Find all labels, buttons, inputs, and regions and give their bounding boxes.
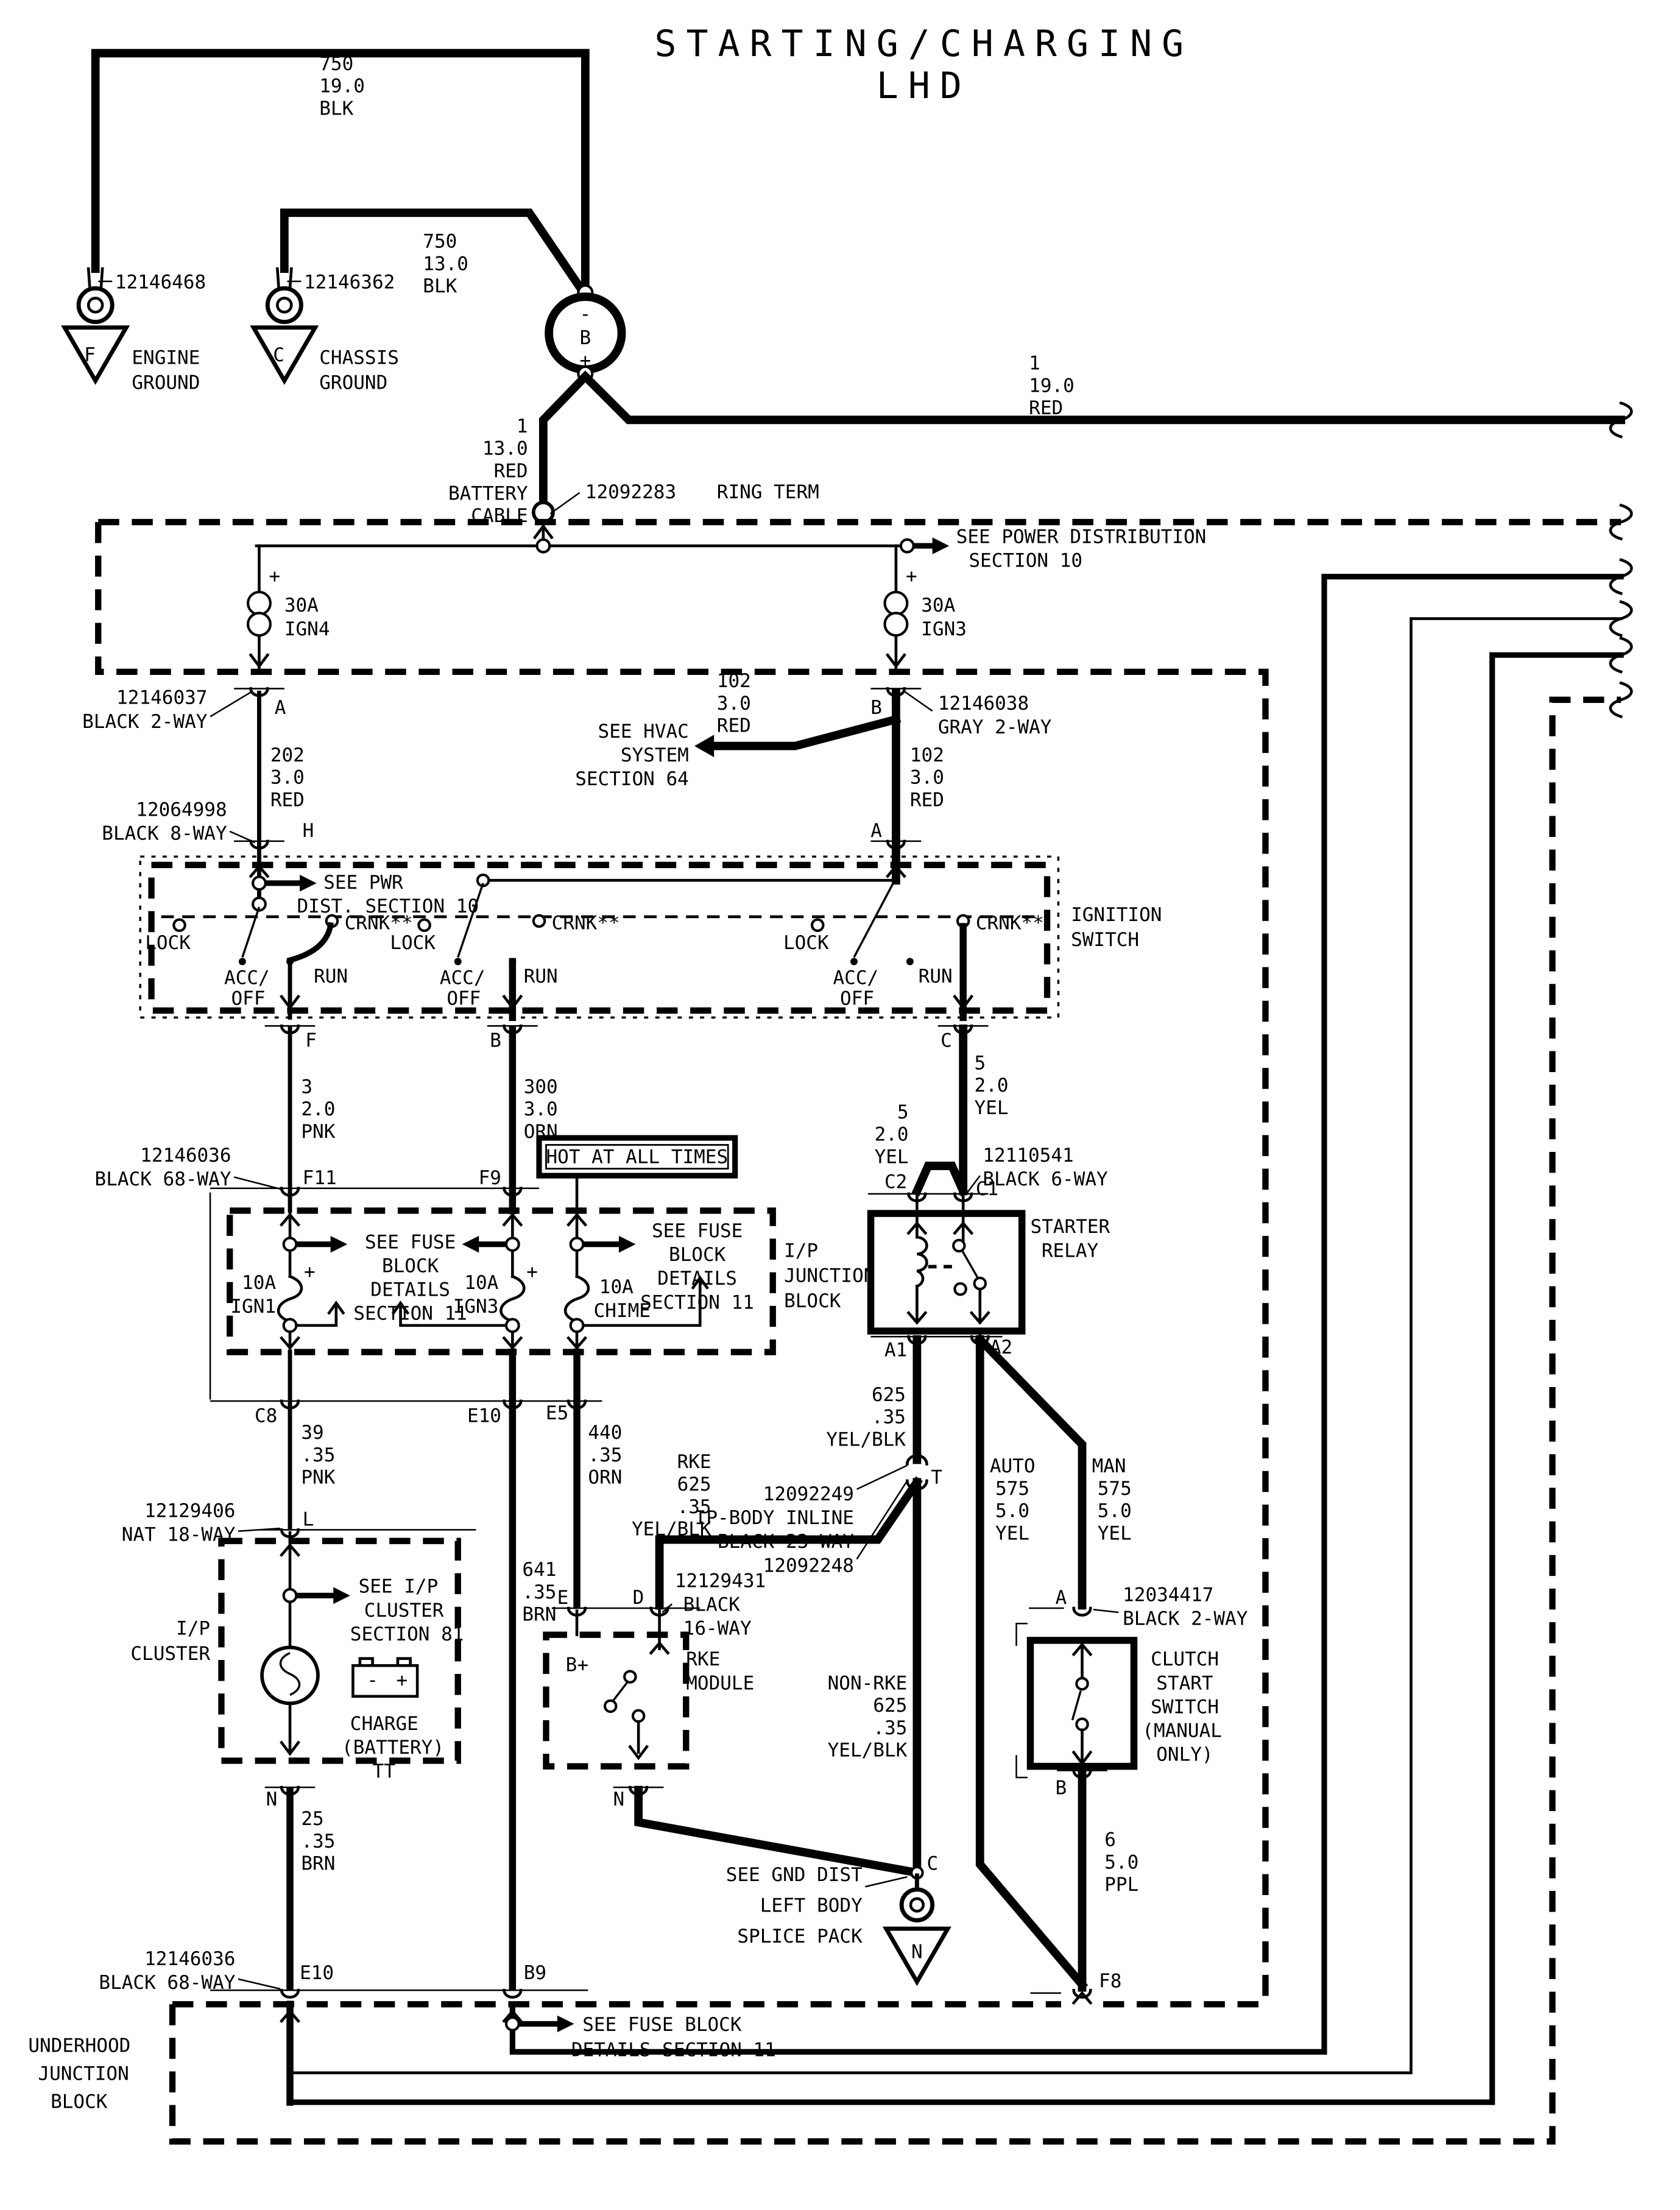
fuse-element-icon [885, 592, 908, 615]
pin-letter: B9 [524, 1962, 546, 1984]
pin-letter: E10 [300, 1962, 334, 1984]
power-distribution-box: SEE POWER DISTRIBUTION SECTION 10 + 30A … [98, 522, 1621, 2004]
component-label: JUNCTION [38, 2063, 129, 2085]
callout-text: SEE FUSE [365, 1232, 456, 1254]
arrowhead-icon [619, 1236, 636, 1253]
page-title: STARTING/CHARGING [655, 23, 1194, 65]
telltale-label: (BATTERY) [342, 1737, 444, 1759]
starting-charging-diagram: STARTING/CHARGING LHD - B + 750 19.0 BLK… [0, 0, 1680, 2210]
plus-sign: + [304, 1261, 316, 1283]
component-label: MODULE [686, 1672, 754, 1694]
ring-hole [88, 298, 102, 312]
pin-letter: H [303, 820, 314, 842]
wire-label: .35 [301, 1444, 335, 1466]
wire-label: .35 [522, 1581, 556, 1603]
callout-text: SPLICE PACK [737, 1926, 863, 1947]
fuse-element-icon [565, 1276, 588, 1321]
pin-letter: T [931, 1467, 942, 1489]
part-number: 12146037 [116, 687, 207, 709]
component-label: I/P [176, 1618, 210, 1640]
battery-letter: B [579, 327, 591, 349]
pin-letter: N [266, 1788, 278, 1810]
junction [253, 877, 266, 889]
stub [577, 1611, 660, 1649]
contact-label: CRNK** [552, 913, 620, 934]
arrowhead-icon [694, 735, 714, 757]
pin-letter: A [870, 820, 882, 842]
pin-letter: E5 [546, 1402, 568, 1424]
callout-text: SEE FUSE BLOCK [582, 2014, 742, 2036]
wire-label: RED [910, 789, 944, 811]
junction [284, 1238, 297, 1251]
ground-pin-letter: N [911, 1941, 923, 1963]
callout-text: DETAILS [657, 1268, 737, 1290]
leader [1093, 1609, 1118, 1612]
rke-contact [624, 1671, 635, 1682]
clutch-contact [1076, 1678, 1087, 1689]
acc-contact [239, 958, 246, 966]
callout-text: SEE I/P [359, 1576, 439, 1598]
wire-label: RED [717, 715, 751, 737]
contact-label: B+ [566, 1654, 588, 1676]
fuse-element-icon [248, 592, 270, 615]
callout-text: SEE HVAC [598, 721, 689, 743]
wire-label: YEL/BLK [632, 1519, 711, 1541]
contact-label: RUN [314, 966, 348, 987]
wire-label: 202 [270, 744, 305, 766]
contact-label: OFF [840, 988, 874, 1010]
battery-cable-down [543, 376, 585, 503]
fuse-label: 30A [284, 595, 319, 616]
pin-letter: E [557, 1587, 569, 1609]
contact-label: OFF [446, 988, 481, 1010]
pin-letter: F11 [303, 1167, 337, 1189]
wire-label: 25 [301, 1808, 323, 1830]
battery-symbol-icon [353, 1665, 417, 1696]
wire-label: 3 [301, 1076, 312, 1098]
connector-row-ab: 12146037 BLACK 2-WAY A 12146038 GRAY 2-W… [82, 670, 1052, 844]
component-label: START [1156, 1672, 1213, 1694]
engine-ground: F 12146468 ENGINE GROUND [65, 269, 206, 394]
ground-name: CHASSIS [319, 347, 399, 369]
contact-label: LOCK [145, 932, 191, 954]
part-number: 12146038 [938, 693, 1029, 715]
wire-label: 5.0 [1098, 1500, 1132, 1522]
left-body-ground: C SEE GND DIST LEFT BODY SPLICE PACK N [726, 1853, 948, 1982]
junction [571, 1238, 584, 1251]
plus-sign: + [269, 565, 281, 587]
leader [865, 1877, 907, 1887]
part-number: IP-BODY INLINE [695, 1507, 854, 1529]
relay-contact [953, 1240, 964, 1251]
wire-label: RED [1029, 397, 1063, 419]
wire-label: 440 [588, 1422, 622, 1444]
hot-at-all-times: HOT AT ALL TIMES [539, 1138, 735, 1176]
wire-label: 102 [910, 744, 944, 766]
component-label: I/P [784, 1240, 818, 1262]
clutch-start-switch: A 12034417 BLACK 2-WAY CLUTCH START SWIT… [1017, 1584, 1248, 1988]
clutch-contact [1076, 1719, 1087, 1730]
pin-letter: C [941, 1030, 952, 1052]
wire-label: 575 [995, 1478, 1029, 1500]
part-number: BLACK [683, 1594, 741, 1616]
component-label: (MANUAL [1142, 1720, 1222, 1742]
crnk-contact [534, 916, 545, 927]
pin-letter: B [490, 1030, 501, 1052]
callout-text: SECTION 11 [640, 1291, 754, 1313]
callout-text: SEE FUSE [652, 1220, 743, 1242]
contact-label: OFF [231, 988, 266, 1010]
ground-name: ENGINE [132, 347, 200, 369]
jb-wire-e10 [290, 619, 1621, 2073]
lock-contact [174, 920, 185, 931]
pin-letter: B [870, 697, 882, 719]
wire-label: 625 [677, 1474, 711, 1495]
part-number: BLACK 2-WAY [82, 711, 208, 733]
component-label: CLUSTER [130, 1643, 210, 1665]
component-label: UNDERHOOD [28, 2035, 130, 2056]
callout-text: SEE GND DIST [726, 1864, 863, 1886]
wire-label: 625 [873, 1695, 907, 1717]
wire-rke-n [638, 1790, 917, 1873]
leader [238, 1979, 280, 1989]
fuse-element-icon [278, 1276, 302, 1321]
wire-label: BRN [522, 1604, 556, 1626]
component-label: IGNITION [1071, 904, 1162, 926]
fuse-label: IGN4 [284, 618, 330, 640]
wire-label: 2.0 [875, 1124, 909, 1146]
junction [571, 1319, 584, 1332]
leader [905, 691, 933, 711]
lock-contact [418, 920, 429, 931]
pin-letter: F [305, 1030, 317, 1052]
arrowhead-icon [300, 875, 317, 892]
relay-contact [975, 1278, 986, 1289]
wire-label: 575 [1098, 1478, 1132, 1500]
connector-bracket [1017, 1623, 1028, 1778]
component-label: BLOCK [51, 2091, 108, 2113]
acc-contact [850, 958, 858, 966]
rke-wiper [613, 1682, 627, 1701]
wire-label: 13.0 [423, 253, 468, 275]
callout-text: SECTION 10 [969, 550, 1082, 572]
callout-text: BLOCK [669, 1244, 726, 1266]
part-number: 12146036 [140, 1145, 231, 1167]
ring-terminal: 12092283 RING TERM [534, 481, 819, 522]
arrowhead-icon [933, 537, 950, 554]
part-number: BLACK 8-WAY [102, 823, 227, 845]
fuse-label: 30A [921, 595, 955, 616]
junction [506, 2018, 519, 2030]
chassis-ground: C 12146362 CHASSIS GROUND [253, 269, 399, 394]
ground-pin-letter: C [273, 344, 284, 366]
junction [506, 1319, 519, 1332]
component-label: SWITCH [1071, 929, 1139, 951]
pin-letter: F9 [479, 1167, 501, 1189]
wire-label: RED [494, 461, 528, 482]
wire-label: 300 [524, 1076, 558, 1098]
wire-label: PNK [301, 1467, 335, 1489]
middle-wires: 641 .35 BRN 440 .35 ORN [512, 1404, 622, 1988]
component-label: RKE [686, 1648, 720, 1670]
contact-label: LOCK [783, 932, 829, 954]
pin-letter: E10 [467, 1405, 501, 1427]
arrowhead-icon [331, 1236, 348, 1253]
part-number: BLACK 6-WAY [983, 1168, 1108, 1190]
wire-label: MAN [1092, 1455, 1126, 1477]
pin-letter: C [926, 1853, 938, 1875]
wire-label: BLK [319, 97, 353, 119]
part-number: 12064998 [136, 799, 227, 821]
rke-contact [605, 1701, 616, 1712]
callout-text: SEE POWER DISTRIBUTION [956, 526, 1207, 548]
page-subtitle: LHD [877, 65, 972, 107]
wire-label: 1 [1029, 353, 1040, 375]
callout-text: SECTION 11 [353, 1303, 467, 1325]
part-number: 12129431 [675, 1570, 766, 1592]
part-number: 12110541 [983, 1145, 1073, 1167]
wire-label: .35 [872, 1407, 906, 1428]
wire-break-squiggles [1611, 403, 1631, 717]
contact-label: CRNK** [976, 913, 1044, 934]
ip-junction-block: I/P JUNCTION BLOCK + + 10A IGN1 10A IGN3 [210, 1177, 875, 1427]
component-label: ONLY) [1156, 1743, 1213, 1765]
part-number: GRAY 2-WAY [938, 716, 1052, 738]
pin-letter: A [275, 697, 286, 719]
contact-label: RUN [524, 966, 558, 987]
ignition-switch: IGNITION SWITCH SEE PWR DIST. SECTION 10… [140, 844, 1162, 1051]
wire-label: YEL/BLK [828, 1740, 908, 1762]
component-label: BLOCK [784, 1290, 841, 1312]
run-contact [906, 958, 914, 966]
wire-label: PPL [1104, 1874, 1138, 1896]
acc-contact [454, 958, 462, 966]
fuse-label: 10A [242, 1272, 276, 1294]
junction [284, 1589, 297, 1602]
wire-label: YEL/BLK [826, 1428, 906, 1450]
callout-text: DETAILS [370, 1279, 450, 1301]
part-number: 12034417 [1123, 1584, 1213, 1606]
arrowhead-icon [333, 1587, 350, 1605]
junction [537, 540, 550, 552]
rke-module: E D 12129431 BLACK 16-WAY RKE MODULE B+ … [546, 1570, 917, 1873]
battery-plus: + [396, 1670, 408, 1692]
wire-label: 5.0 [1104, 1851, 1138, 1873]
callout-text: SYSTEM [621, 744, 689, 766]
diagram-title: STARTING/CHARGING LHD [655, 23, 1194, 107]
contact-label: LOCK [390, 932, 436, 954]
junction [901, 540, 914, 552]
ground-name: GROUND [319, 372, 387, 394]
callout-text: LEFT BODY [760, 1895, 863, 1917]
wire-label: 3.0 [270, 767, 305, 789]
hot-label: HOT AT ALL TIMES [546, 1146, 729, 1168]
wire-label: 13.0 [482, 438, 528, 460]
wire-label: 1 [517, 415, 528, 437]
battery-minus: - [579, 303, 591, 325]
pin-letter: L [303, 1508, 314, 1530]
battery-minus: - [367, 1670, 378, 1692]
part-number: 12146362 [304, 271, 395, 293]
callout-text: BLOCK [382, 1255, 439, 1277]
jb-wire-main [290, 655, 1621, 2102]
callout-text: SECTION 64 [575, 768, 689, 790]
pin-letter: C1 [976, 1178, 998, 1200]
ground-name: GROUND [132, 372, 200, 394]
wire-label: .35 [873, 1717, 907, 1739]
rke-contact [633, 1710, 644, 1721]
wire-label: PNK [301, 1121, 335, 1143]
cluster-box [221, 1541, 457, 1761]
wire-label: .35 [588, 1444, 622, 1466]
wire-label: YEL [1098, 1522, 1132, 1544]
pin-letter: A1 [884, 1339, 907, 1361]
wire-label: 102 [717, 670, 751, 692]
arrowhead-icon [462, 1236, 479, 1253]
wire-label: 641 [522, 1559, 556, 1581]
contact-label: ACC/ [440, 967, 485, 989]
ip-cluster: 39 .35 PNK 12129406 NAT 18-WAY L I/P CLU… [122, 1404, 464, 1988]
wire-label: BRN [301, 1853, 335, 1875]
contact-label: RUN [919, 966, 953, 987]
wire-label: 625 [872, 1384, 906, 1406]
wire-label: 750 [319, 53, 353, 75]
component-label: SWITCH [1151, 1696, 1219, 1718]
part-number: 12129406 [144, 1500, 235, 1522]
pin-letter: C8 [255, 1405, 277, 1427]
contact-label: CRNK** [345, 913, 413, 934]
ring-hole [911, 1899, 923, 1912]
plus-sign: + [906, 565, 917, 587]
wire-label: RED [270, 789, 305, 811]
wire-label: 39 [301, 1422, 323, 1444]
actuator-arc [290, 925, 331, 960]
ground-pin-letter: F [84, 344, 96, 366]
pin-letter: N [613, 1788, 624, 1810]
c2-bridge [917, 1166, 963, 1191]
fuse-element-icon [501, 1276, 524, 1321]
wire-label: BLK [423, 275, 457, 297]
battery-plus: + [579, 350, 591, 372]
wire-label: 5.0 [995, 1500, 1029, 1522]
wire-label: 750 [423, 231, 457, 253]
wire-label: 2.0 [301, 1098, 335, 1120]
wire-label: .35 [677, 1496, 711, 1518]
leader [210, 691, 252, 716]
wire-label: 19.0 [319, 76, 365, 97]
pin-letter: F8 [1099, 1971, 1121, 1993]
callout-text: SECTION 81 [350, 1623, 464, 1645]
callout-text: CLUSTER [364, 1600, 444, 1622]
wire-label: 19.0 [1029, 375, 1075, 397]
wire-label: BATTERY [448, 482, 528, 504]
junction [506, 1238, 519, 1251]
contact-label: ACC/ [224, 967, 270, 989]
component-label: CLUTCH [1151, 1648, 1219, 1670]
part-number: 12146468 [115, 271, 206, 293]
junction [284, 1319, 297, 1332]
component-label: STARTER [1030, 1216, 1110, 1238]
lock-contact [812, 920, 823, 931]
starter-relay-box [871, 1213, 1022, 1331]
wiring-diagram-page: STARTING/CHARGING LHD - B + 750 19.0 BLK… [0, 0, 1680, 2210]
telltale-label: TT [373, 1760, 395, 1782]
telltale-label: CHARGE [350, 1713, 418, 1735]
part-number: BLACK 2-WAY [1123, 1608, 1248, 1630]
pin-letter: D [633, 1587, 644, 1609]
component-label: JUNCTION [784, 1265, 875, 1287]
relay-contact [955, 1283, 965, 1294]
pin-letter: A [1056, 1587, 1067, 1609]
wire-label: 6 [1104, 1829, 1116, 1851]
fuse-label: 10A [464, 1272, 498, 1294]
plus-sign: + [526, 1261, 538, 1283]
wire-label: .35 [301, 1830, 335, 1852]
fuse-label: IGN3 [921, 618, 967, 640]
wire-label: 3.0 [717, 693, 751, 715]
component-label: RELAY [1042, 1240, 1099, 1262]
wire-label: YEL [995, 1522, 1029, 1544]
wire-label: YEL [875, 1146, 909, 1168]
wire-label: NON-RKE [828, 1672, 908, 1694]
wire-label: RKE [677, 1451, 711, 1473]
flow-arrow-up [281, 1215, 585, 1224]
part-number: 16-WAY [683, 1618, 752, 1640]
part-number: 12146036 [144, 1948, 235, 1970]
pin-letter: B [1056, 1778, 1067, 1799]
part-number: BLACK 68-WAY [95, 1168, 231, 1190]
wire-label: YEL [975, 1097, 1009, 1119]
wire-label: 3.0 [910, 767, 944, 789]
wiper [854, 883, 893, 958]
fuse-label: 10A [599, 1276, 634, 1298]
part-number: 12092249 [763, 1483, 854, 1505]
wire-label: 2.0 [975, 1075, 1009, 1096]
callout-text: SEE PWR [323, 872, 403, 894]
callout-text: DETAILS SECTION 11 [571, 2039, 776, 2061]
arrowhead-icon [557, 2016, 574, 2033]
fuse-element-icon [885, 613, 908, 635]
part-number: 12092248 [763, 1555, 854, 1576]
wiper [242, 907, 259, 958]
fuse-label: IGN1 [230, 1296, 276, 1318]
part-name: RING TERM [717, 481, 819, 503]
battery-feed-right [585, 376, 1621, 420]
bus-wire [256, 522, 907, 546]
wire-label: AUTO [990, 1455, 1036, 1477]
wire-label: 5 [975, 1052, 986, 1074]
ignition-switch-box [152, 865, 1048, 1011]
part-number: 12092283 [585, 481, 676, 503]
ring-hole [277, 298, 291, 312]
flow-arrow-down [281, 1338, 585, 1348]
wiper [458, 883, 483, 958]
fuse-element-icon [248, 613, 270, 635]
wire-label: ORN [588, 1467, 622, 1489]
wire-label: 3.0 [524, 1098, 558, 1120]
contact-label: ACC/ [833, 967, 879, 989]
leader [550, 493, 579, 514]
pin-letter: C2 [884, 1171, 907, 1193]
wire-label: 5 [897, 1101, 909, 1123]
